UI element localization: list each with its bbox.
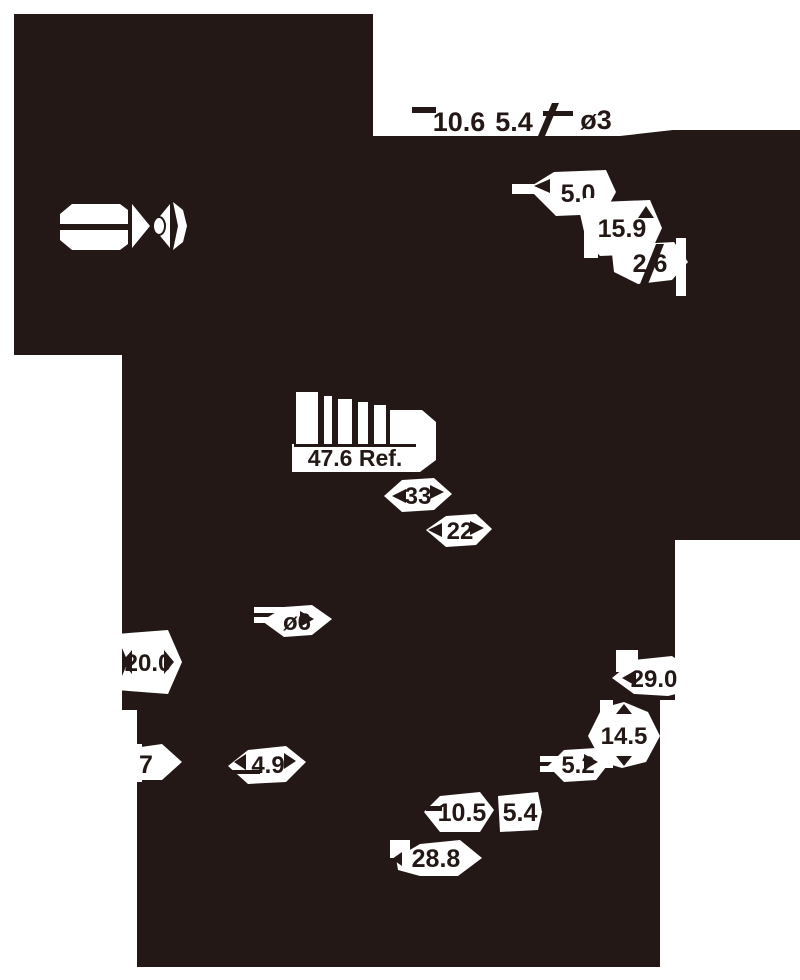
screw-body-line bbox=[60, 224, 128, 230]
dim-label-10-5: 10.5 bbox=[438, 799, 487, 827]
dim-top-row: 10.6 5.4 ø3 bbox=[412, 103, 612, 137]
dim-label-15-9: 15.9 bbox=[598, 215, 647, 243]
dim-label-33: 33 bbox=[405, 483, 432, 510]
engineering-drawing-canvas: 10.6 5.4 ø3 5.0 15.9 2.6 47.6 Ref. bbox=[0, 0, 800, 980]
leader-line bbox=[543, 111, 573, 116]
dim-label-22: 22 bbox=[447, 518, 474, 545]
dim-label-dia6: ø6 bbox=[283, 609, 311, 636]
dim-label-7: 7 bbox=[139, 751, 153, 779]
dim-5-4-bottom: 5.4 bbox=[498, 792, 542, 832]
dim-label-20-0: 20.0 bbox=[125, 650, 172, 677]
dim-label-29-0: 29.0 bbox=[631, 666, 678, 693]
dim-label-14-5: 14.5 bbox=[601, 723, 648, 750]
dim-label-4-9: 4.9 bbox=[251, 752, 284, 779]
dim-label-dia3: ø3 bbox=[580, 105, 612, 135]
dim-label-28-8: 28.8 bbox=[412, 845, 461, 873]
dim-label-5-4-top: 5.4 bbox=[495, 107, 533, 137]
dimension-drawing: 10.6 5.4 ø3 5.0 15.9 2.6 47.6 Ref. bbox=[0, 0, 800, 980]
dim-label-5-2: 5.2 bbox=[561, 752, 594, 779]
dim-label-10-6: 10.6 bbox=[433, 107, 486, 137]
top-left-ink-panel bbox=[14, 14, 373, 355]
dim-20-0: 20.0 bbox=[116, 630, 182, 694]
screw-head-oval bbox=[153, 217, 165, 235]
dim-label-47-6-ref: 47.6 Ref. bbox=[308, 445, 403, 471]
dim-label-5-4-bottom: 5.4 bbox=[503, 799, 538, 827]
screw-silhouette bbox=[60, 202, 187, 250]
